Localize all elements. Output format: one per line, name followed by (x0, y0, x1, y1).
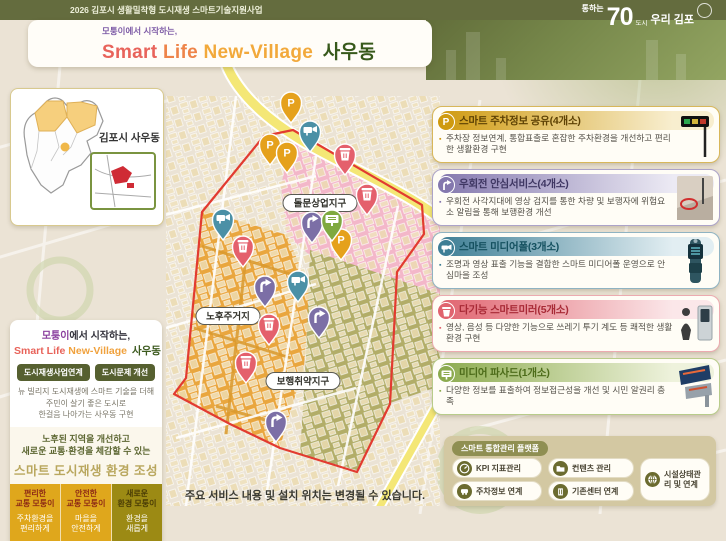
parking-icon: P (437, 113, 455, 131)
service-title: 다기능 스마트미러(5개소) (439, 300, 714, 319)
service-panel-mediapole: 스마트 미디어폴(3개소) ▪조명과 영상 표출 기능을 결합한 스마트 미디어… (432, 232, 720, 289)
highlight-box: 노후된 지역을 개선하고 새로운 교통·환경을 체감할 수 있는 스마트 도시재… (10, 427, 162, 484)
service-title: 우회전 안심서비스(4개소) (439, 174, 714, 193)
media-pole-device-image (675, 237, 715, 285)
platform-chip-facility-status[interactable]: 시설상태관리 및 연계 (640, 458, 710, 501)
crosswalk-photo-image (675, 174, 715, 222)
service-panel-mediafacade: 미디어 파사드(1개소) ▪다양한 정보를 표출하여 정보접근성을 개선 및 시… (432, 358, 720, 415)
info-title-red: Smart Life (14, 345, 65, 357)
platform-chip-contents[interactable]: 컨텐츠 관리 (548, 458, 634, 478)
service-panel-rightturn: 우회전 안심서비스(4개소) ▪우회전 사각지대에 영상 검지를 통한 차량 및… (432, 169, 720, 226)
info-para-line2: 주민이 살기 좋은 도시로 (10, 398, 162, 410)
logo-small-text: 통하는 (582, 3, 604, 14)
svg-text:노후주거지: 노후주거지 (206, 311, 250, 323)
info-card: 모퉁이에서 시작하는, Smart Life New-Village 사우동 도… (10, 320, 162, 541)
building-texture (166, 96, 440, 506)
platform-chip-parking-link[interactable]: 주차정보 연계 (452, 481, 542, 501)
map-zone-label: 돌문상업지구 (283, 195, 357, 212)
platform-chip-kpi[interactable]: KPI 지표관리 (452, 458, 542, 478)
svg-text:돌문상업지구: 돌문상업지구 (294, 198, 347, 210)
urban-regeneration-link-button[interactable]: 도시재생사업연계 (17, 364, 90, 381)
header-card: 모퉁이에서 시작하는, Smart Life New-Village 사우동 (28, 20, 432, 67)
info-para-line1: 뉴 빌리지 도시재생에 스마트 기술을 더해 (10, 386, 162, 398)
header-pre-title: 모퉁이에서 시작하는, (102, 25, 432, 37)
info-title: Smart Life New-Village 사우동 (14, 343, 158, 358)
site-map: 돌문상업지구노후주거지보행취약지구 PPPP (166, 66, 440, 506)
svg-text:P: P (283, 148, 290, 160)
page-title: Smart Life New-Village 사우동 (102, 37, 432, 64)
theme-column-safe: 안전한교통 모퉁이 마을을안전하게 (61, 484, 112, 541)
service-title: 스마트 주차정보 공유(4개소) (439, 111, 714, 130)
title-word-life: Life (163, 42, 198, 63)
title-word-smart: Smart (102, 42, 157, 63)
info-pre-rest: 에서 시작하는, (69, 331, 130, 342)
info-para-line3: 한걸음 나아가는 사우동 구현 (10, 409, 162, 421)
logo-big-text: 70 (607, 5, 633, 30)
city-seal-icon (697, 3, 712, 18)
gimpo-city-logo: 통하는 70 도시 우리 김포 (582, 3, 712, 30)
right-turn-icon (437, 176, 455, 194)
highlight-line2: 새로운 교통·환경을 체감할 수 있는 (12, 445, 160, 458)
building-icon (553, 484, 568, 499)
title-word-newvillage: New-Village (204, 42, 314, 63)
info-card-header: 모퉁이에서 시작하는, Smart Life New-Village 사우동 (10, 320, 162, 358)
service-title: 스마트 미디어폴(3개소) (439, 237, 714, 256)
map-zone-label: 노후주거지 (196, 308, 260, 325)
gimpo-outline-map: 김포시 사우동 (11, 89, 160, 222)
parking-sign-image (675, 111, 715, 159)
platform-chip-center-link[interactable]: 기존센터 연계 (548, 481, 634, 501)
gimpo-map-label: 김포시 사우동 (99, 131, 160, 144)
map-zone-label: 보행취약지구 (266, 373, 340, 390)
media-facade-icon (437, 365, 455, 383)
footnote: 주요 서비스 내용 및 설치 위치는 변경될 수 있습니다. (150, 487, 460, 503)
info-title-orange: New-Village (68, 345, 127, 357)
svg-text:P: P (266, 140, 273, 152)
platform-label: 스마트 통합관리 플랫폼 (452, 441, 548, 456)
smart-mirror-kiosk-image (675, 300, 715, 348)
service-panel-smartmirror: 다기능 스마트미러(5개소) ▪영상, 음성 등 다양한 기능으로 쓰레기 투기… (432, 295, 720, 352)
sawoo-inset-map (91, 153, 155, 209)
small-district-spot (61, 143, 70, 152)
urban-problem-improve-button[interactable]: 도시문제 개선 (95, 364, 155, 381)
info-pre-title: 모퉁이에서 시작하는, (14, 327, 158, 342)
highlight-big-text: 스마트 도시재생 환경 조성 (12, 460, 160, 479)
highlight-line1: 노후된 지역을 개선하고 (12, 433, 160, 446)
title-word-sawoodong: 사우동 (323, 42, 376, 63)
theme-column-convenient: 편리한교통 모퉁이 주차환경을편리하게 (10, 484, 61, 541)
info-paragraph: 뉴 빌리지 도시재생에 스마트 기술을 더해 주민이 살기 좋은 도시로 한걸음… (10, 386, 162, 421)
cctv-camera-icon (437, 239, 455, 257)
gimpo-locator-card: 김포시 사우동 (10, 88, 164, 226)
platform-box: 스마트 통합관리 플랫폼 KPI 지표관리 컨텐츠 관리 주차정보 연계 기존센… (444, 436, 716, 506)
globe-icon (645, 472, 660, 487)
info-title-green: 사우동 (132, 345, 161, 357)
logo-tiny-text: 도시 (635, 17, 647, 27)
service-title: 미디어 파사드(1개소) (439, 363, 714, 382)
theme-columns: 편리한교통 모퉁이 주차환경을편리하게 안전한교통 모퉁이 마을을안전하게 새로… (10, 484, 162, 541)
svg-text:보행취약지구: 보행취약지구 (277, 376, 330, 388)
folder-icon (553, 461, 568, 476)
trash-bin-icon (437, 302, 455, 320)
media-facade-screens-image (675, 363, 715, 411)
svg-text:P: P (337, 235, 344, 247)
info-buttons-row: 도시재생사업연계 도시문제 개선 (10, 364, 162, 381)
program-title: 2026 김포시 생활밀착형 도시재생 스마트기술지원사업 (70, 4, 263, 16)
service-panel-parking: P 스마트 주차정보 공유(4개소) ▪주차장 정보연계, 통합표출로 혼잡한 … (432, 106, 720, 163)
logo-rest-text: 우리 김포 (650, 11, 694, 27)
info-pre-accent: 모퉁이 (42, 331, 70, 342)
gauge-icon (457, 461, 472, 476)
svg-text:P: P (287, 98, 294, 110)
car-icon (457, 484, 472, 499)
